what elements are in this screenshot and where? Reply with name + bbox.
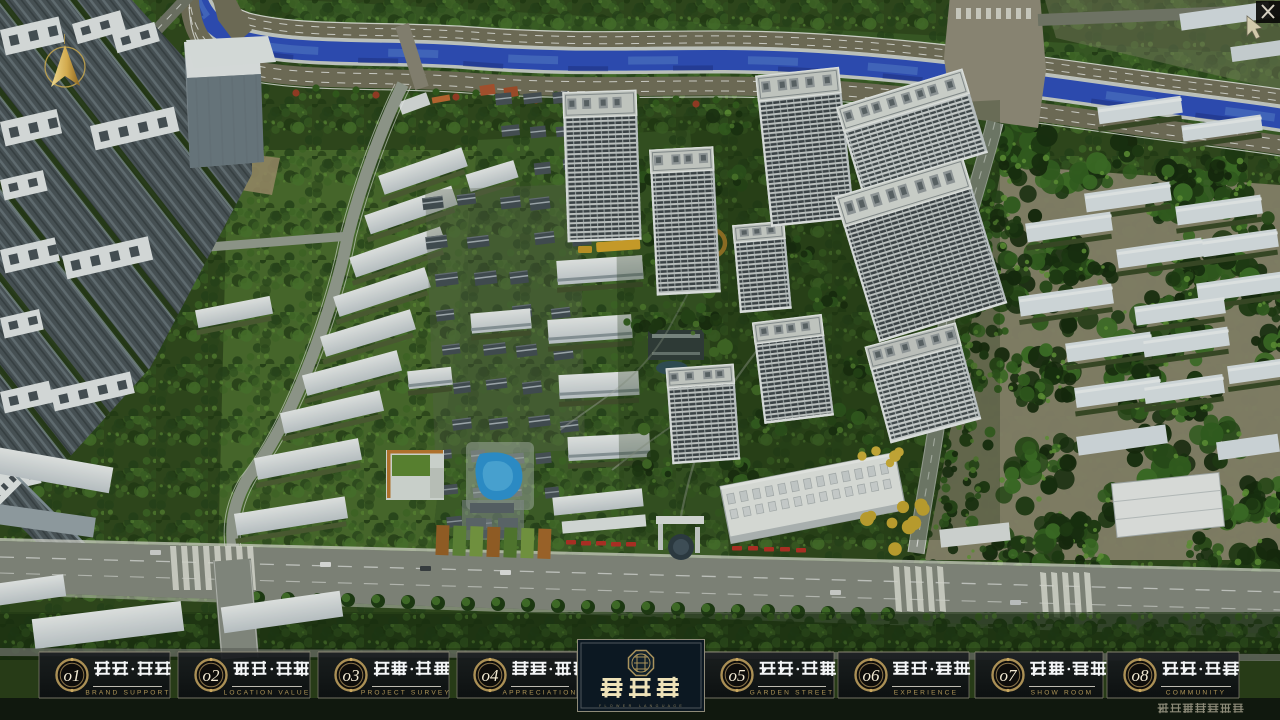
svg-text:PROJECT SURVEY: PROJECT SURVEY: [361, 690, 451, 697]
svg-text:LOCATION VALUE: LOCATION VALUE: [224, 690, 311, 697]
svg-text:o2: o2: [203, 666, 221, 685]
svg-text:o6: o6: [863, 666, 881, 685]
svg-text:COMMUNITY: COMMUNITY: [1166, 690, 1226, 697]
svg-text:BRAND SUPPORT: BRAND SUPPORT: [85, 690, 170, 697]
svg-text:o3: o3: [343, 666, 360, 685]
svg-text:o7: o7: [1000, 666, 1019, 685]
svg-text:o5: o5: [729, 666, 746, 685]
svg-text:o4: o4: [482, 666, 500, 685]
svg-text:APPRECIATION: APPRECIATION: [502, 690, 577, 697]
svg-text:SHOW ROOM: SHOW ROOM: [1031, 690, 1094, 697]
svg-text:GARDEN STREET: GARDEN STREET: [750, 690, 835, 697]
svg-text:EXPERIENCE: EXPERIENCE: [894, 690, 959, 697]
svg-text:F L O W E R L A N G U A G E: F L O W E R L A N G U A G E: [599, 704, 683, 708]
svg-text:o1: o1: [64, 666, 81, 685]
svg-text:o8: o8: [1132, 666, 1150, 685]
